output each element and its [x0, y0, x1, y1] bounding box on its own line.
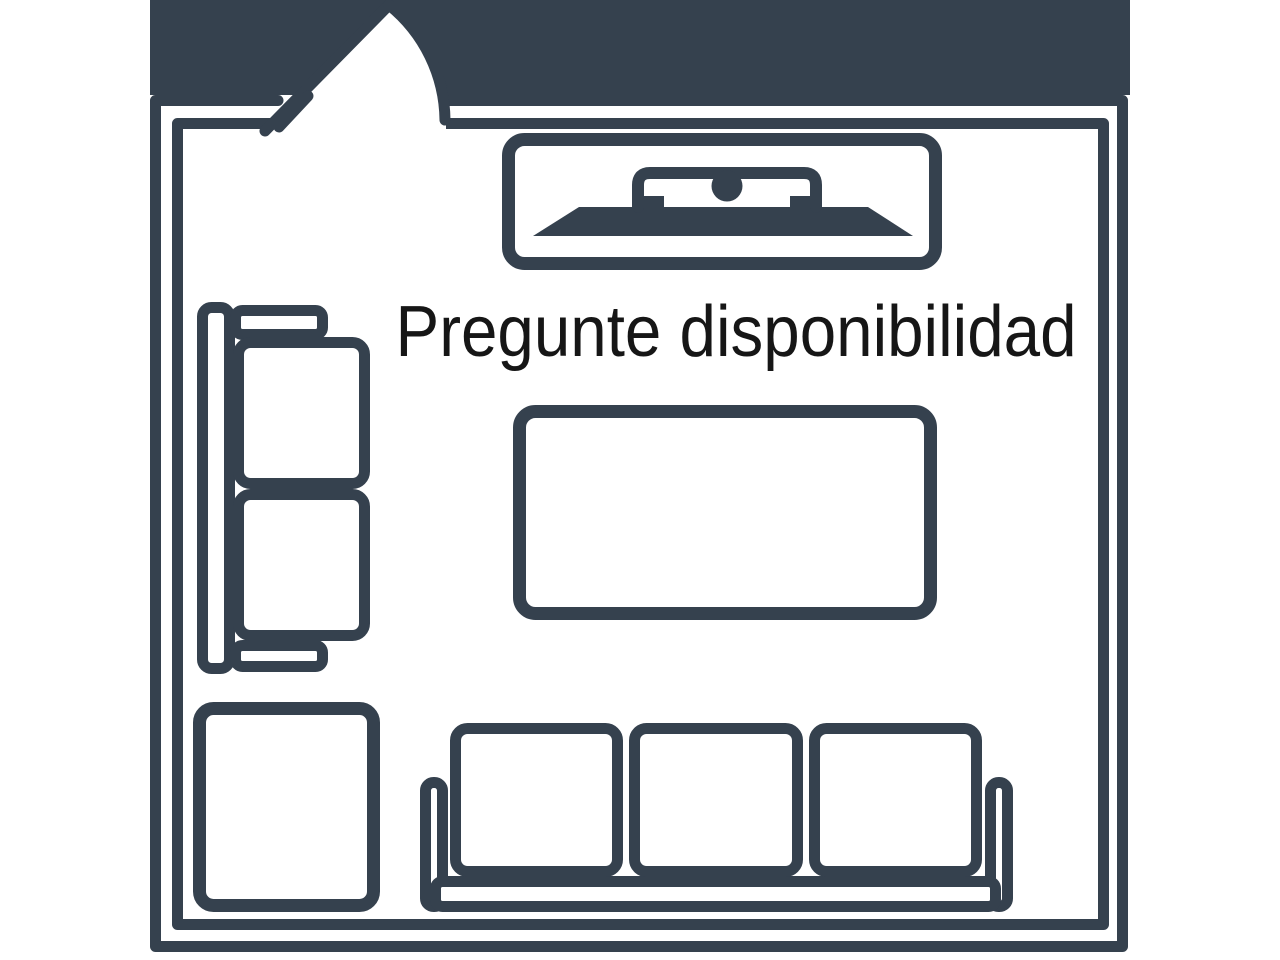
sofa-cushion-1	[456, 729, 618, 872]
tv-console-base	[533, 207, 913, 236]
loveseat-armrest-bottom	[236, 646, 323, 667]
coffee-table-outline	[520, 412, 931, 614]
floor-plan-image: Pregunte disponibilidad	[0, 0, 1280, 960]
side-table-outline	[200, 709, 374, 906]
sofa-icon	[426, 729, 1008, 907]
side-table-icon	[200, 709, 374, 906]
floor-plan-svg: Pregunte disponibilidad	[0, 0, 1280, 960]
tv-console-outline	[509, 140, 936, 264]
sofa-cushion-2	[635, 729, 798, 872]
loveseat-armrest-top	[236, 311, 323, 335]
loveseat-back	[203, 308, 230, 669]
loveseat-cushion-1	[239, 343, 365, 484]
top-banner	[150, 0, 1130, 95]
sofa-back	[436, 882, 996, 907]
tv-console-icon	[509, 140, 936, 264]
caption: Pregunte disponibilidad	[396, 292, 1077, 372]
tv-console-foot-right	[790, 196, 816, 208]
sofa-cushion-3	[815, 729, 977, 872]
loveseat-cushion-2	[239, 495, 365, 636]
tv-console-foot-left	[638, 196, 664, 208]
tv-console-knob	[712, 171, 743, 202]
loveseat-icon	[203, 308, 365, 669]
coffee-table-icon	[520, 412, 931, 614]
